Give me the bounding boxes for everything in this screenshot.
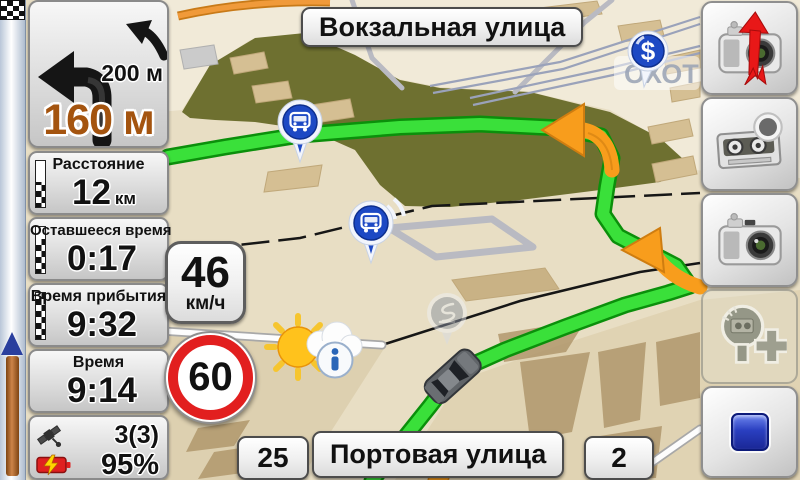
maneuver-distance: 160 м: [30, 96, 167, 145]
add-speedcam-icon: [713, 300, 787, 374]
panel-label: Оставшееся время: [30, 222, 167, 239]
status-panel[interactable]: 3(3) 95%: [28, 415, 169, 480]
turn-panel[interactable]: 200 м 160 м: [28, 0, 169, 148]
speed-unit: км/ч: [186, 294, 226, 313]
battery-icon: [36, 454, 72, 476]
current-street-label[interactable]: Вокзальная улица: [301, 7, 583, 47]
screenshot-button[interactable]: [701, 193, 798, 287]
panel-value: 12км: [40, 174, 168, 213]
satellite-count: 3(3): [62, 421, 165, 450]
camera-icon: [713, 203, 787, 277]
panel-value: 0:17: [40, 240, 168, 279]
finish-flag-icon: [0, 0, 25, 20]
navigator-screen: ОХОТ $: [0, 0, 800, 480]
clock-panel[interactable]: Время 9:14: [28, 349, 169, 413]
battery-level: 95%: [72, 449, 165, 480]
house-number-left[interactable]: 25: [237, 436, 309, 480]
minimize-button[interactable]: [701, 386, 798, 478]
route-progress-bar: [0, 0, 26, 480]
house-number-right[interactable]: 2: [584, 436, 654, 480]
speed-limit-sign: 60: [164, 331, 257, 424]
add-speedcam-button[interactable]: [701, 289, 798, 384]
satellite-icon: [36, 422, 62, 448]
route-progress-fill: [6, 356, 19, 476]
camera-report-button[interactable]: [701, 1, 798, 95]
record-track-icon: [713, 107, 787, 181]
panel-value: 9:32: [40, 306, 168, 345]
panel-label: Время: [30, 354, 167, 372]
svg-text:$: $: [641, 36, 656, 66]
camera-arrow-icon: [713, 11, 787, 85]
panel-label: Расстояние: [30, 156, 167, 174]
panel-label: Время прибытия: [30, 288, 167, 306]
track-record-button[interactable]: [701, 97, 798, 191]
time-left-panel[interactable]: Оставшееся время 0:17: [28, 217, 169, 281]
speed-value: 46: [181, 252, 230, 294]
progress-position-arrow-icon: [1, 332, 23, 355]
speedometer[interactable]: 46 км/ч: [165, 241, 246, 324]
next-turn-arrow-icon: [126, 20, 164, 56]
next-street-name: Портовая улица: [330, 433, 546, 476]
next-maneuver-distance: 200 м: [101, 60, 163, 87]
panel-value: 9:14: [40, 372, 168, 411]
next-street-label[interactable]: Портовая улица: [312, 431, 564, 478]
current-street-name: Вокзальная улица: [319, 9, 565, 45]
minimize-square-icon: [731, 413, 769, 451]
distance-panel[interactable]: Расстояние 12км: [28, 151, 169, 215]
arrival-time-panel[interactable]: Время прибытия 9:32: [28, 283, 169, 347]
speed-limit-value: 60: [168, 335, 253, 420]
